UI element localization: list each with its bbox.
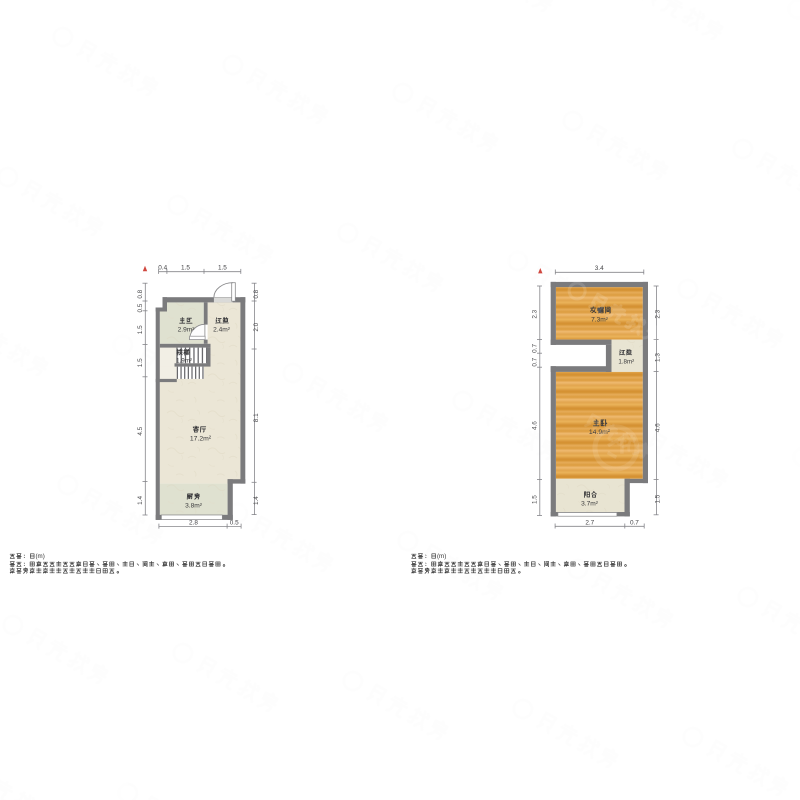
svg-text:2.0: 2.0 — [253, 322, 260, 331]
svg-text:2.7: 2.7 — [585, 520, 594, 527]
svg-text:1.5: 1.5 — [655, 494, 662, 503]
svg-text:4.5: 4.5 — [137, 426, 144, 435]
svg-text:1.5: 1.5 — [137, 325, 144, 334]
svg-text:0.4: 0.4 — [158, 265, 167, 272]
svg-text:8.1: 8.1 — [253, 413, 260, 422]
svg-text:2.9m²: 2.9m² — [178, 326, 196, 333]
svg-text:3.4: 3.4 — [595, 265, 604, 272]
svg-text:1.4: 1.4 — [253, 496, 260, 505]
svg-text:0.7: 0.7 — [630, 520, 639, 527]
svg-text:0.7: 0.7 — [532, 357, 539, 366]
svg-text:1.9m²: 1.9m² — [176, 357, 192, 364]
svg-text:1.5: 1.5 — [532, 495, 539, 504]
svg-text:4.6: 4.6 — [532, 421, 539, 430]
svg-text:17.2m²: 17.2m² — [190, 435, 212, 442]
svg-text:0.7: 0.7 — [532, 344, 539, 353]
svg-text:3.7m²: 3.7m² — [581, 501, 599, 508]
svg-text:1.5: 1.5 — [137, 358, 144, 367]
svg-text:(m): (m) — [36, 553, 45, 560]
svg-text:0.5: 0.5 — [137, 303, 144, 312]
svg-text:2.8: 2.8 — [189, 520, 198, 527]
svg-text:1.4: 1.4 — [137, 496, 144, 505]
svg-text:2.3: 2.3 — [532, 309, 539, 318]
svg-text:3.8m²: 3.8m² — [185, 502, 203, 509]
svg-text:0.8: 0.8 — [137, 289, 144, 298]
svg-text:0.5: 0.5 — [230, 520, 239, 527]
svg-text:1.5: 1.5 — [181, 265, 190, 272]
svg-text:2.4m²: 2.4m² — [213, 326, 231, 333]
svg-text:1.3: 1.3 — [655, 353, 662, 362]
svg-text:(m): (m) — [437, 553, 446, 560]
svg-text:4.6: 4.6 — [655, 423, 662, 432]
svg-text:0.8: 0.8 — [253, 289, 260, 298]
svg-text:2.3: 2.3 — [655, 309, 662, 318]
svg-text:1.5: 1.5 — [218, 265, 227, 272]
svg-text:1.8m²: 1.8m² — [618, 359, 634, 366]
